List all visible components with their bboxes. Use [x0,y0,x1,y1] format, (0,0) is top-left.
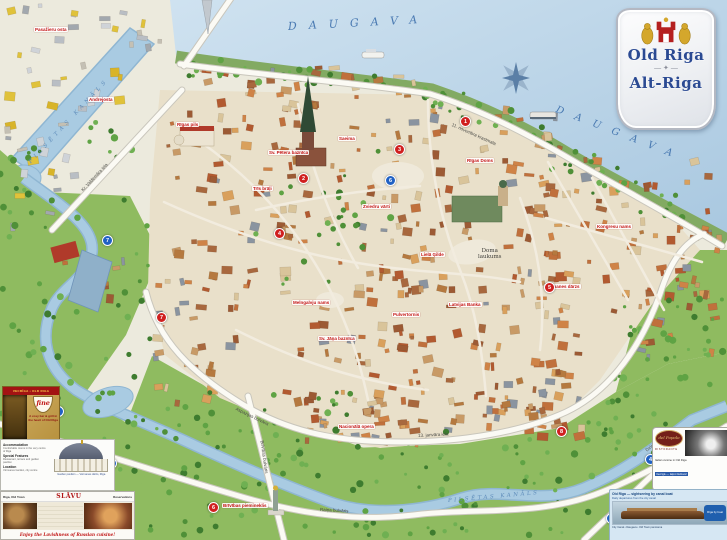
red-numbered-marker: 3 [394,144,405,155]
boat-ad-subtitle: Daily departures from the city canal [612,496,727,500]
cartouche-ornament: — ✦ — [654,64,678,74]
red-numbered-marker: 2 [298,173,309,184]
pavilion-section-text: Restaurant, terrace and garden pavilion [3,458,47,464]
banner-middle-art [38,503,83,529]
popolo-logo: del Popolo [655,430,683,447]
popolo-photo [685,430,727,456]
red-numbered-marker: 4 [274,228,285,239]
red-numbered-marker: 6 [208,502,219,513]
map-title-cartouche: Old Riga — ✦ — Alt-Riga [616,8,716,130]
popolo-line1: Italian cuisine in Old Riga [655,458,727,462]
banner-photo-bar [3,503,37,529]
pavilion-caption: Garden pavilion — Vērmanes dārzs, Rīga [49,473,114,476]
red-numbered-marker: 7 [156,312,167,323]
riga-coat-of-arms-icon [638,16,694,46]
red-numbered-marker: 1 [460,116,471,127]
banner-left-text: Riga, Old Town [3,495,25,499]
boat-ad-photo: Rīga by boat [612,501,727,525]
slavu-restaurant-banner-ad: Riga, Old Town SLĀVU Reservations Enjoy … [0,491,135,540]
flyer-interior-photo [3,395,27,439]
popolo-subtitle: RISTORANTE [655,448,683,451]
pavilion-section-text: Comfortable rooms in the very centre of … [3,447,47,453]
popolo-line2: Vecrīgā — laipni lūdzam! [655,472,688,476]
banner-right-text: Reservations [113,495,132,499]
pavilion-base-illustration [54,459,108,472]
flyer-banner-text: VECRĪGA • OLD RIGA [3,387,59,395]
red-numbered-marker: 5 [544,282,555,293]
banner-photo-interior [84,503,132,529]
banner-logo: SLĀVU [56,493,81,500]
map-title-german: Alt-Riga [630,74,703,92]
banner-tagline: Enjoy the Lavishness of Russian cuisine! [1,530,134,539]
canal-boat-illustration [621,511,705,519]
restaurant-flyer-ad: VECRĪGA • OLD RIGA fine A cosy bar & gri… [2,386,60,440]
pavilion-dome-illustration [59,443,103,459]
canal-boat-tour-ad: Old Riga — sightseeing by canal boat Dai… [609,489,727,540]
del-popolo-restaurant-ad: del Popolo RISTORANTE Italian cuisine in… [652,427,727,491]
hotel-pavilion-ad: AccommodationComfortable rooms in the ve… [0,439,115,491]
boat-ad-footer: City Canal • Daugava • Old Town panorama [612,526,727,529]
old-riga-pictorial-map: DAUGAVADAUGAVAPILSĒTAS KANĀLSPILSĒTAS KA… [0,0,727,540]
flyer-logo: fine [33,396,53,413]
map-title-english: Old Riga [628,46,705,64]
pavilion-section-text: Vērmanes Garden, city centre [3,469,47,472]
blue-numbered-marker: 6 [385,175,396,186]
blue-numbered-marker: 7 [102,235,113,246]
red-numbered-marker: 8 [556,426,567,437]
boat-ad-badge: Rīga by boat [704,505,726,521]
flyer-text: A cosy bar & grill in the heart of Old R… [28,415,58,423]
